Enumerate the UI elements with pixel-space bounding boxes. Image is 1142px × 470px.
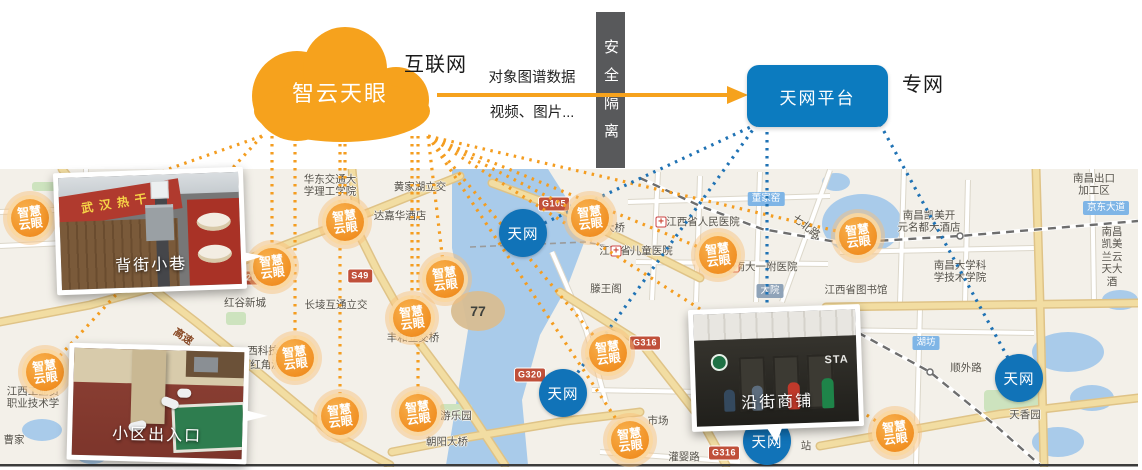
photo-image: STA 沿街商铺 xyxy=(693,309,859,427)
photo-image: 小区出入口 xyxy=(72,348,245,459)
pillar xyxy=(130,349,166,424)
meter-box xyxy=(194,357,218,373)
private-network-label: 专网 xyxy=(902,68,944,97)
photo-image: 武汉热干 背街小巷 xyxy=(58,172,242,290)
arrow-label-top: 对象图谱数据 xyxy=(462,66,602,87)
arrow-label-bottom: 视频、图片... xyxy=(458,101,606,122)
slide-canvas: 华东交通大 学理工学院黄家湖立交达嘉华酒店红谷新城长堎互通立交丰和立交桥西科技红… xyxy=(0,0,1142,470)
architecture-diagram: 智云天眼 互联网 安全隔离 对象图谱数据 视频、图片... 天网平台 专网 xyxy=(0,0,1142,170)
camera-housing xyxy=(145,204,174,241)
camera-on-floor xyxy=(177,389,191,398)
photo-street-shops: STA 沿街商铺 xyxy=(688,304,864,432)
photo-community-entrance: 小区出入口 xyxy=(66,343,249,465)
store-sign: STA xyxy=(824,353,849,366)
notice-box xyxy=(150,180,169,199)
photo-back-alley: 武汉热干 背街小巷 xyxy=(53,167,247,296)
skynet-platform-box: 天网平台 xyxy=(747,65,888,127)
photo-caption: 小区出入口 xyxy=(72,419,243,447)
